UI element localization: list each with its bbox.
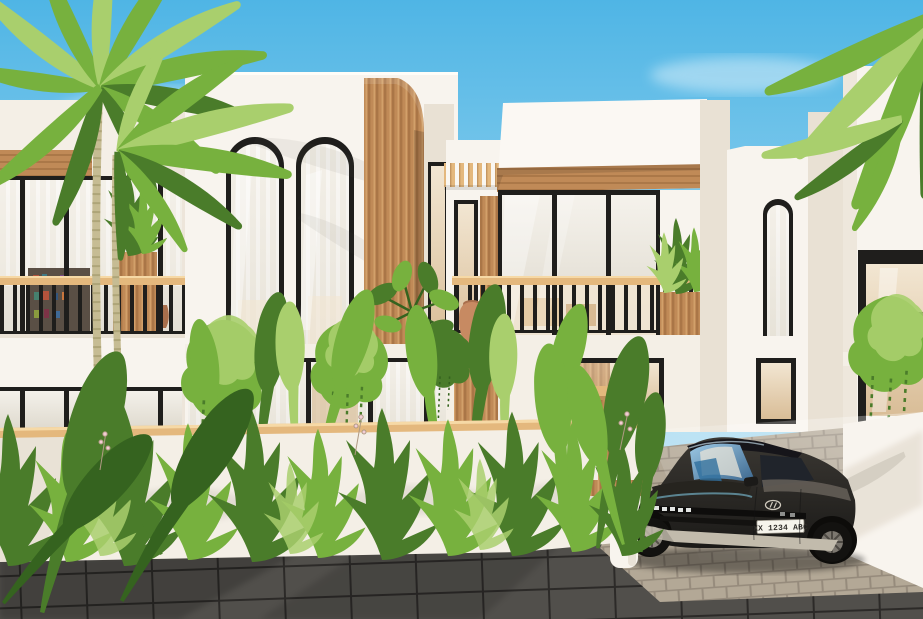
- lower-window: [756, 358, 796, 424]
- pergola: [444, 163, 502, 187]
- villa-render-image: XX 1234 ABC: [0, 0, 923, 619]
- narrow-arched-window: [763, 199, 793, 336]
